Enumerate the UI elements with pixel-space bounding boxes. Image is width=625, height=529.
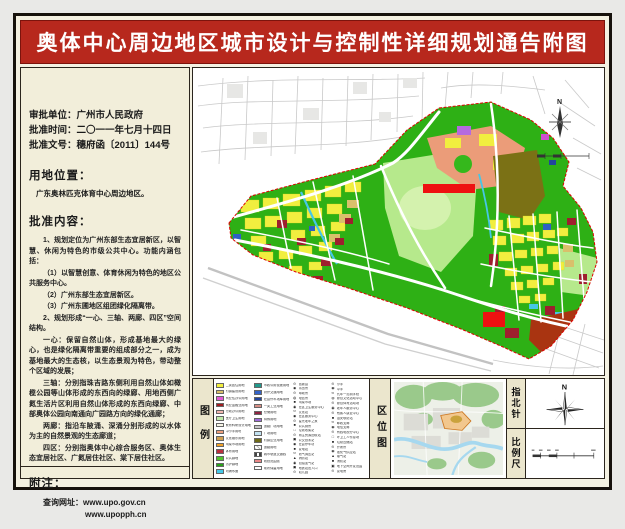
facility-symbol-icon: ⊙ (331, 402, 336, 406)
approval-unit-line: 审批单位：广州市人民政府 (29, 108, 181, 123)
scale-label: 比例尺 (510, 437, 523, 470)
legend-item-label: 九年一贯制学校 (337, 393, 359, 396)
legend-item-label: 邮政支局 (337, 422, 350, 425)
legend-column-3: ⊙ 居委会 ◉ 派出所 ⊙ 邮政所 (293, 382, 329, 475)
approval-doc-value: 穗府函〔2011〕144号 (77, 140, 170, 151)
legend-swatch (216, 469, 224, 474)
location-map (394, 382, 503, 475)
approval-doc-label: 批准文号： (29, 140, 77, 151)
facility-symbol-icon: ■ (331, 460, 336, 464)
legend-item-label: 开闭所 (337, 446, 347, 449)
legend-item-label: 消防站 (299, 457, 309, 460)
legend-item: 道路用地 (254, 444, 290, 451)
content-paragraph: （3）广州东圃地区组团绿化隔离带。 (29, 302, 181, 313)
legend-item-label: 综合体育活动场 (337, 402, 359, 405)
content-paragraph: 2、规划形成“一心、三轴、两廊、四区”空间结构。 (29, 314, 181, 335)
legend-swatch (254, 445, 262, 450)
legend-item-label: 社会停车场 (299, 443, 315, 446)
facility-symbol-icon: ◉ (331, 387, 336, 391)
legend-item-label: 体育用地 (226, 450, 239, 453)
facility-symbol-icon: ◍ (293, 397, 298, 401)
legend-swatch (216, 403, 224, 408)
legend-item: 文化娱乐用地 (216, 435, 252, 442)
facility-symbol-icon: ⊙ (293, 392, 298, 396)
legend-item: 公共绿地 (216, 455, 252, 462)
legend-item-label: 再生资源回收站 (299, 434, 321, 437)
svg-text:N: N (562, 382, 567, 391)
legend-item: 村镇建设用地 (216, 389, 252, 396)
legend-item: 行政办公用地 (216, 409, 252, 416)
facility-symbol-icon: □ (293, 429, 298, 433)
legend-item-label: 防护绿地 (226, 463, 239, 466)
legend-item-label: 肉菜市场用地 (226, 443, 245, 446)
facility-symbol-icon: ⊙ (331, 412, 336, 416)
zoning-map: N (193, 68, 604, 375)
legend-item-label: 规划范围线 (264, 460, 280, 463)
legend-item: 肉菜市场用地 (216, 442, 252, 449)
facility-symbol-icon: ▲ (293, 457, 298, 461)
legend-column-2: 市政公用设施用地 对外交通用地 社会停车场库用地 (254, 382, 290, 475)
approval-unit-label: 审批单位： (29, 110, 77, 121)
legend-item-label: 治安联防站 (337, 417, 353, 420)
legend-swatch (216, 390, 224, 395)
legend-item-label: 文化娱乐用地 (226, 437, 245, 440)
legend-item-label: 燃气调压站 (299, 453, 315, 456)
legend-item: 医疗卫生用地 (216, 415, 252, 422)
facility-symbol-icon: ⊙ (293, 434, 298, 438)
sheet-frame: 奥体中心周边地区城市设计与控制性详细规划通告附图 审批单位：广州市人民政府 批准… (13, 13, 612, 490)
legend-swatch (254, 418, 262, 423)
facility-symbol-icon: □ (331, 436, 336, 440)
legend-item-label: 社区卫生服务中心 (299, 406, 325, 409)
legend-swatch (254, 397, 262, 402)
legend-item: 社会停车场库用地 (254, 396, 290, 403)
scale-bar-row: 比例尺 (507, 429, 604, 478)
legend-item-label: 村镇建设用地 (226, 390, 245, 393)
north-arrow-row: 指北针 N (507, 379, 604, 429)
legend-item-label: 小学 (337, 383, 343, 386)
facility-symbol-icon: ⊙ (293, 383, 298, 387)
content-paragraph: （2）广州东部生态宜居新区。 (29, 291, 181, 302)
legend-item-label: 液化气供应站 (337, 451, 356, 454)
legend-item: 道路广场用地 (254, 423, 290, 430)
legend-item-label: 对外交通用地 (264, 391, 283, 394)
facility-symbol-icon: ▣ (331, 465, 336, 469)
legend-item-label: 有线电视分中心 (337, 431, 359, 434)
legend-swatch (216, 436, 224, 441)
legend-item-label: 医疗卫生用地 (226, 417, 245, 420)
approval-unit-value: 广州市人民政府 (77, 110, 144, 121)
title-bar: 奥体中心周边地区城市设计与控制性详细规划通告附图 (20, 20, 605, 64)
legend-item-label: 居委会 (299, 383, 309, 386)
notes-section: 附注： 查询网址：www.upo.gov.cn www.upopph.cn (21, 466, 189, 529)
facility-symbol-icon: ⊙ (331, 446, 336, 450)
info-panel: 审批单位：广州市人民政府 批准时间：二〇一一年七月十四日 批准文号：穗府函〔20… (20, 67, 190, 479)
legend-item: 河涌水面 (216, 468, 252, 475)
legend-item-label: 煤气站 (337, 455, 347, 458)
facility-symbol-icon: ◉ (293, 462, 298, 466)
legend-item-label: 变电房 (337, 470, 347, 473)
legend-column-1: 二类居住用地 村镇建设用地 商业性办公用地 (216, 382, 252, 475)
facility-symbol-icon: ⊙ (293, 452, 298, 456)
content-paragraph: 一心：保留自然山体，形成基地最大的绿心，也是绿化隔离带重要的组成部分之一，成为基… (29, 336, 181, 378)
legend-item-label: 市政公用设施用地 (264, 384, 290, 387)
legend-item-label: 加油加气站 (299, 462, 315, 465)
notes-heading: 附注： (29, 475, 181, 491)
facility-symbol-icon: ⊙ (331, 421, 336, 425)
legend-swatch (216, 416, 224, 421)
legend-item: 现状保留用地 (254, 465, 290, 472)
legend-item-label: 地下空间开发范围 (337, 465, 363, 468)
legend-item-label: 星光老年之家 (299, 420, 318, 423)
legend-swatch (216, 449, 224, 454)
approval-date-value: 二〇一一年七月十四日 (77, 125, 172, 136)
legend-item-label: 行政办公用地 (226, 410, 245, 413)
legend-column-4: ⊙ 小学 ◉ 中学 ⊙ 九年一贯制学校 (331, 382, 367, 475)
zoning-map-panel: N (192, 67, 605, 376)
facility-symbol-icon: ◉ (331, 426, 336, 430)
query-label: 查询网址： (43, 498, 83, 507)
content-paragraphs: 1、规划定位为广州东部生态宜居新区，以智慧、休闲为特色的市级公共中心。功能内涵包… (29, 235, 181, 466)
legend-swatch (254, 438, 262, 443)
legend-symbol-item: ⊙ 幼儿园 (293, 470, 329, 475)
query-url-2: www.upopph.cn (85, 510, 181, 519)
location-map-box (391, 379, 507, 478)
location-body: 广东奥林匹克体育中心周边地区。 (36, 188, 181, 199)
legend-item-label: 派出所 (299, 387, 309, 390)
legend-symbol-item: ⊙ 变电房 (331, 469, 367, 474)
legend-item-label: 道路用地 (264, 446, 277, 449)
legend-item-label: 商业金融业用地 (226, 404, 248, 407)
legend-swatch (216, 423, 224, 428)
legend-item: 二类居住用地 (216, 382, 252, 389)
legend-item-label: 垃圾压缩站 (337, 441, 353, 444)
facility-symbol-icon: ■ (293, 448, 298, 452)
scale-label-cell: 比例尺 (507, 429, 526, 478)
legend-item: 广场用地 (254, 430, 290, 437)
facility-symbol-icon: ◍ (331, 397, 336, 401)
facility-symbol-icon: ⊙ (331, 383, 336, 387)
location-map-label: 区位图 (373, 405, 388, 453)
legend-swatch (254, 390, 262, 395)
legend-item-label: 道路广场用地 (264, 425, 283, 428)
legend-item-label: 变电站 (299, 448, 309, 451)
facility-symbol-icon: ▲ (331, 455, 336, 459)
legend-item-label: 公共绿地 (226, 457, 239, 460)
query-url-line: 查询网址：www.upo.gov.cn (43, 497, 181, 508)
legend-item: 城市轨道交通线 (254, 451, 290, 458)
legend-swatch (216, 430, 224, 435)
legend-swatch (254, 431, 262, 436)
facility-symbol-icon: ■ (293, 401, 298, 405)
facility-symbol-icon: ◉ (293, 406, 298, 410)
facility-symbol-icon: ⊙ (331, 431, 336, 435)
legend-swatch (254, 425, 262, 430)
facility-symbol-icon: ⊙ (293, 410, 298, 414)
approval-doc-line: 批准文号：穗府函〔2011〕144号 (29, 138, 181, 153)
legend-item: 村镇企业用地 (254, 437, 290, 444)
legend-swatch (216, 456, 224, 461)
legend-swatch (216, 383, 224, 388)
legend-item-label: 电信支局 (337, 426, 350, 429)
facility-symbol-icon: ⊙ (293, 471, 298, 475)
content-paragraph: 三轴：分别指珠吉路东侧利用自然山体如橄榄公园等山体形成的东西向的绿廊、用地西侧广… (29, 379, 181, 421)
legend-item-label: 文化站 (299, 411, 309, 414)
legend-item-label: 商业性办公用地 (226, 397, 248, 400)
approval-date-label: 批准时间： (29, 125, 77, 136)
map-north-arrow: N (549, 99, 571, 138)
legend-label: 图例 (196, 405, 211, 453)
legend-swatch (254, 404, 262, 409)
legend-swatch (254, 383, 262, 388)
legend-item-label: 现状保留用地 (264, 467, 283, 470)
legend-item-label: 幼儿园 (299, 471, 309, 474)
scale-bar-icon (529, 446, 601, 462)
legend-item-label: 城市轨道交通线 (264, 453, 286, 456)
facility-symbol-icon: ⊙ (331, 470, 336, 474)
legend-item-label: 一类工业用地 (264, 405, 283, 408)
facility-symbol-icon: ■ (331, 417, 336, 421)
legend-swatch (216, 443, 224, 448)
legend-item: 教育科研设计用地 (216, 422, 252, 429)
legend-item: 一类工业用地 (254, 403, 290, 410)
facility-symbol-icon: ■ (331, 441, 336, 445)
legend-item-label: 地铁站出入口 (299, 467, 318, 470)
legend-swatch (254, 452, 262, 457)
legend-item: 体育用地 (216, 448, 252, 455)
legend-label-cell: 图例 (193, 379, 214, 478)
legend-item-label: 河涌水面 (226, 470, 239, 473)
compass-rose-icon: N (538, 381, 592, 427)
content-paragraph: （1）以智慧创意、体育休闲为特色的地区公共服务中心。 (29, 269, 181, 290)
legend-item-label: 残疾人康复中心 (337, 412, 359, 415)
facility-symbol-icon: ◉ (293, 387, 298, 391)
legend-item-label: 环卫工人作息场 (337, 436, 359, 439)
legend-swatch (254, 466, 262, 471)
legend-item: 特殊用地 (254, 416, 290, 423)
content-paragraph: 两廊：指沿车陂涌、深涌分别形成的以水体为主的自然景观的生态廊道； (29, 422, 181, 443)
legend-item-label: 中学 (337, 388, 343, 391)
legend-item-label: 邮政所 (299, 392, 309, 395)
legend-swatch (216, 463, 224, 468)
legend-item-label: 二类居住用地 (226, 384, 245, 387)
facility-symbol-icon: ◉ (331, 450, 336, 454)
legend-item: 对外交通用地 (254, 389, 290, 396)
legend-item-label: 综合文化活动中心 (337, 397, 363, 400)
facility-symbol-icon: ▣ (293, 466, 298, 470)
legend-item: 商业金融业用地 (216, 402, 252, 409)
content-paragraph: 四区：分别指奥体中心综合服务区、奥体生态宜居社区、广氮居住社区、棠下居住社区。 (29, 444, 181, 465)
legend-item-label: 垃圾收集站 (299, 429, 315, 432)
approval-date-line: 批准时间：二〇一一年七月十四日 (29, 123, 181, 138)
facility-symbol-icon: ⊙ (293, 420, 298, 424)
legend-swatch (216, 410, 224, 415)
facility-symbol-icon: ■ (293, 424, 298, 428)
legend-item-label: 电信所 (299, 397, 309, 400)
legend-item-label: 公共厕所 (299, 425, 312, 428)
facility-symbol-icon: ◉ (293, 443, 298, 447)
facility-symbol-icon: ▣ (293, 438, 298, 442)
legend-item-label: 仓储用地 (264, 411, 277, 414)
legend-item: 市政公用设施用地 (254, 382, 290, 389)
north-label-cell: 指北针 (507, 379, 526, 428)
legend-item-label: 村镇企业用地 (264, 439, 283, 442)
north-label: 指北针 (510, 387, 523, 420)
legend-item-label: 特殊用地 (264, 418, 277, 421)
legend-item-label: 教育科研设计用地 (226, 424, 252, 427)
legend-item: 商业性办公用地 (216, 395, 252, 402)
legend-swatch (216, 396, 224, 401)
facility-symbol-icon: ◉ (331, 407, 336, 411)
facility-symbol-icon: ◉ (293, 415, 298, 419)
facility-symbol-icon: ⊙ (331, 392, 336, 396)
legend-swatch (254, 411, 262, 416)
legend-item-label: 社区服务中心 (299, 415, 318, 418)
legend-item: 规划范围线 (254, 458, 290, 465)
legend-item-label: 社会停车场库用地 (264, 398, 290, 401)
content-heading: 批准内容： (29, 213, 181, 229)
svg-text:N: N (557, 99, 562, 106)
legend-item: 仓储用地 (254, 410, 290, 417)
content-paragraph: 1、规划定位为广州东部生态宜居新区，以智慧、休闲为特色的市级公共中心。功能内涵包… (29, 236, 181, 268)
page-title: 奥体中心周边地区城市设计与控制性详细规划通告附图 (37, 27, 589, 57)
legend-item: 中小学用地 (216, 428, 252, 435)
legend-item: 防护绿地 (216, 462, 252, 469)
legend-item-label: 广场用地 (264, 432, 277, 435)
legend-swatch (254, 459, 262, 464)
location-heading: 用地位置： (29, 167, 181, 183)
legend-item-label: 消防站 (337, 460, 347, 463)
legend-item-label: 公交首末站 (299, 439, 315, 442)
legend-item-label: 肉菜市场 (299, 401, 312, 404)
legend-box: 二类居住用地 村镇建设用地 商业性办公用地 (214, 379, 370, 478)
legend-item-label: 中小学用地 (226, 430, 242, 433)
location-map-label-cell: 区位图 (370, 379, 391, 478)
query-url-1: www.upo.gov.cn (83, 498, 146, 507)
legend-item-label: 老年人服务中心 (337, 407, 359, 410)
bottom-band: 图例 二类居住用地 村镇建设用地 (192, 378, 605, 479)
